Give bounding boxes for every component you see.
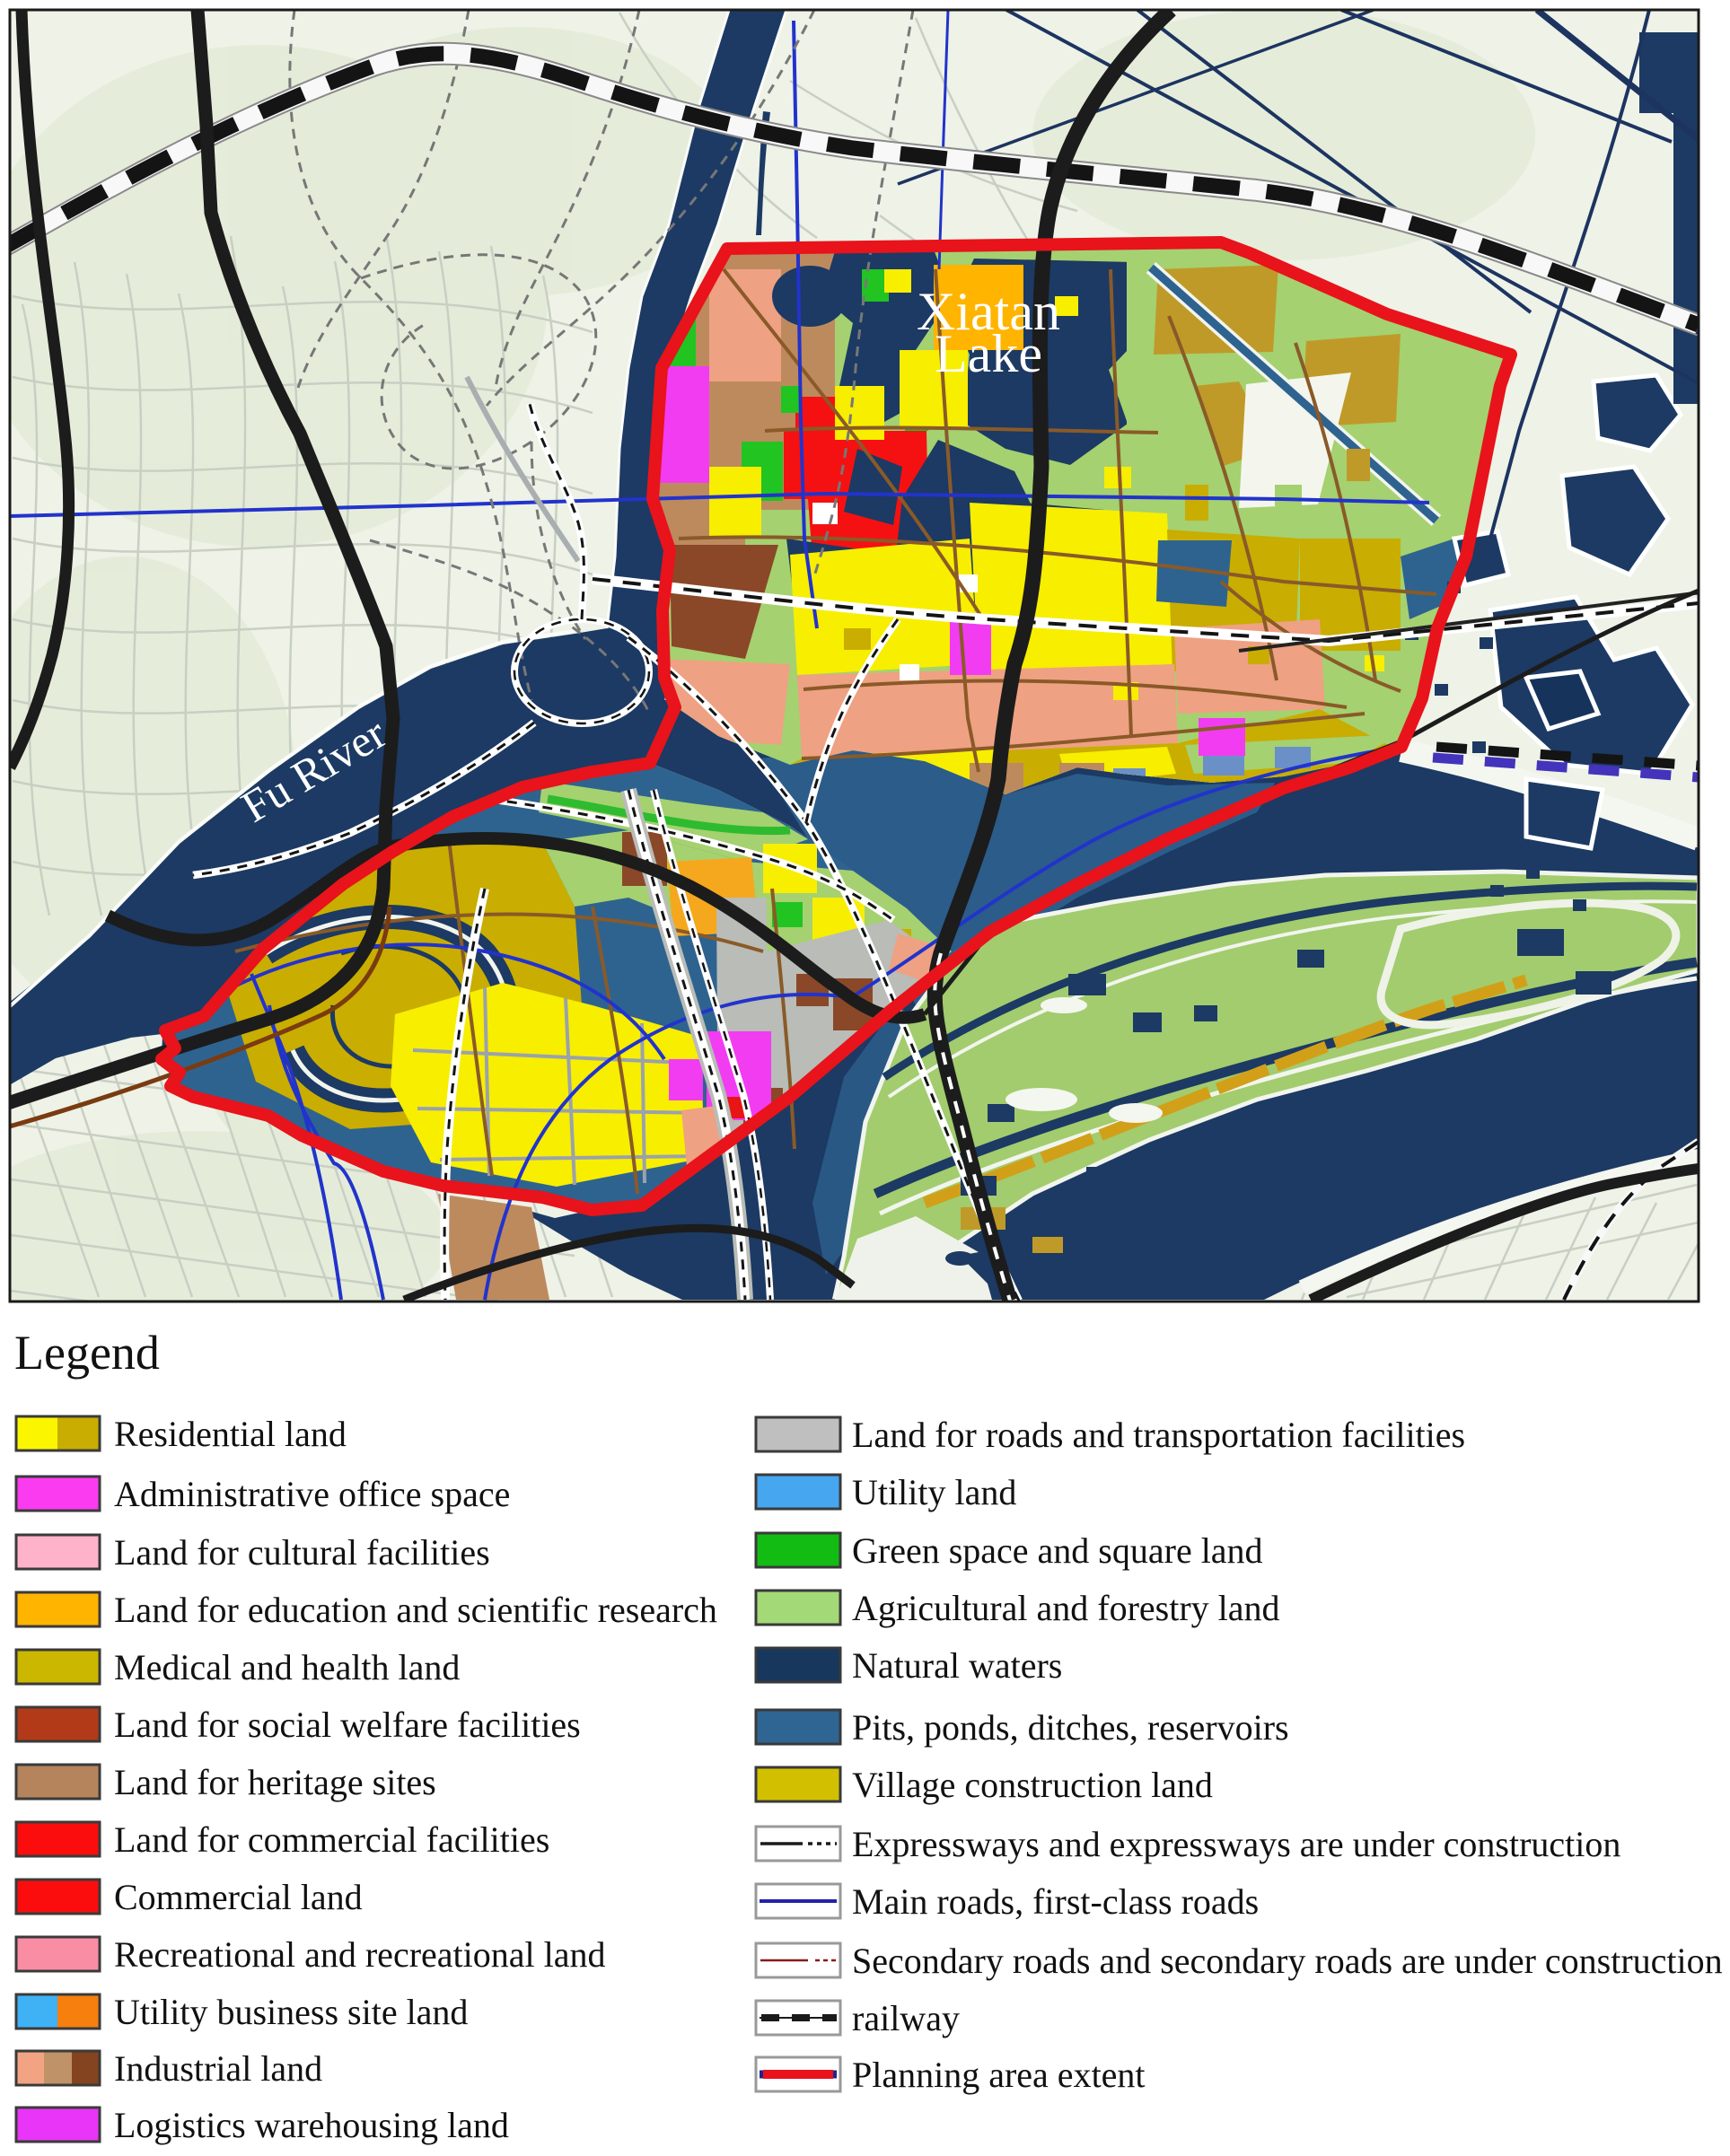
svg-text:Utility business site land: Utility business site land <box>114 1992 468 2032</box>
svg-text:Residential land: Residential land <box>114 1414 347 1454</box>
svg-text:Land for social welfare facili: Land for social welfare facilities <box>114 1705 581 1745</box>
svg-text:Village construction land: Village construction land <box>852 1765 1213 1805</box>
svg-text:Land for heritage sites: Land for heritage sites <box>114 1762 436 1802</box>
svg-text:railway: railway <box>852 1998 960 2038</box>
svg-text:Legend: Legend <box>14 1326 160 1380</box>
svg-text:Utility land: Utility land <box>852 1472 1016 1512</box>
svg-text:Natural waters: Natural waters <box>852 1645 1062 1686</box>
svg-text:Land for education and scienti: Land for education and scientific resear… <box>114 1590 717 1630</box>
svg-text:Expressways and expressways ar: Expressways and expressways are under co… <box>852 1824 1620 1864</box>
svg-text:Industrial land: Industrial land <box>114 2048 322 2089</box>
svg-text:Pits, ponds, ditches, reservoi: Pits, ponds, ditches, reservoirs <box>852 1707 1289 1748</box>
svg-text:Secondary roads and secondary: Secondary roads and secondary roads are … <box>852 1941 1723 1981</box>
svg-text:Land for commercial facilities: Land for commercial facilities <box>114 1819 549 1860</box>
svg-text:Commercial land: Commercial land <box>114 1877 363 1917</box>
svg-text:Main roads, first-class roads: Main roads, first-class roads <box>852 1881 1259 1922</box>
svg-text:Agricultural and forestry land: Agricultural and forestry land <box>852 1588 1280 1628</box>
svg-text:Recreational and recreational: Recreational and recreational land <box>114 1934 605 1975</box>
svg-text:Logistics warehousing land: Logistics warehousing land <box>114 2105 509 2145</box>
svg-text:Land for cultural facilities: Land for cultural facilities <box>114 1532 490 1573</box>
svg-text:Planning area extent: Planning area extent <box>852 2055 1146 2095</box>
svg-text:Green space and square land: Green space and square land <box>852 1530 1263 1571</box>
svg-text:Land for roads and transportat: Land for roads and transportation facili… <box>852 1415 1465 1455</box>
svg-text:Lake: Lake <box>935 324 1042 383</box>
svg-text:Administrative office space: Administrative office space <box>114 1474 510 1514</box>
svg-text:Medical and health land: Medical and health land <box>114 1647 460 1687</box>
